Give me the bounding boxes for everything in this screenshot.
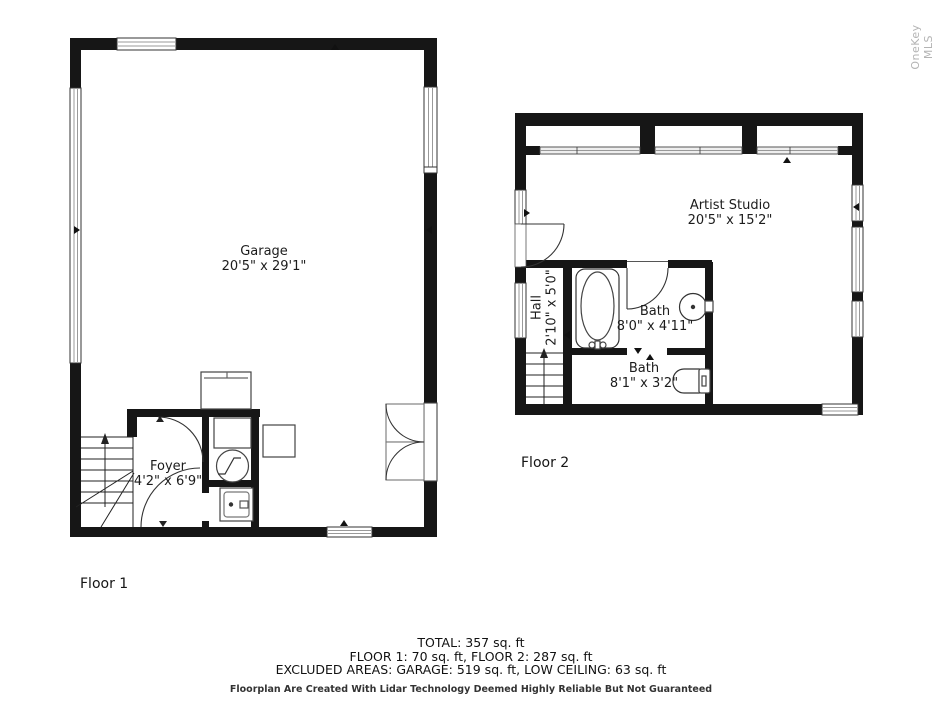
floorplan-page: Garage 20'5" x 29'1" Foyer 4'2" x 6'9" A… bbox=[0, 0, 942, 724]
room-dims: 8'0" x 4'11" bbox=[585, 320, 725, 335]
floorplan-drawing bbox=[0, 0, 942, 724]
summary-floors: FLOOR 1: 70 sq. ft, FLOOR 2: 287 sq. ft bbox=[0, 650, 942, 664]
summary-excluded: EXCLUDED AREAS: GARAGE: 519 sq. ft, LOW … bbox=[0, 663, 942, 677]
bath2-label: Bath 8'1" x 3'2" bbox=[574, 362, 714, 391]
washer-icon bbox=[220, 488, 253, 521]
room-name: Hall bbox=[531, 260, 546, 356]
utility-box-icon bbox=[214, 418, 251, 448]
room-dims: 8'1" x 3'2" bbox=[574, 377, 714, 392]
stairs-floor2-icon bbox=[526, 348, 563, 404]
room-name: Bath bbox=[585, 305, 725, 320]
room-dims: 2'10" x 5'0" bbox=[545, 260, 560, 356]
artist-studio-label: Artist Studio 20'5" x 15'2" bbox=[655, 199, 805, 228]
room-name: Bath bbox=[574, 362, 714, 377]
floor1-label: Floor 1 bbox=[80, 576, 128, 592]
room-dims: 20'5" x 29'1" bbox=[194, 260, 334, 275]
bath-door-icon bbox=[627, 260, 668, 309]
appliance-icon bbox=[201, 372, 251, 409]
floor2-label: Floor 2 bbox=[521, 455, 569, 471]
floor2-dormer-windows bbox=[540, 147, 838, 154]
room-name: Foyer bbox=[98, 460, 238, 475]
garage-box-icon bbox=[263, 425, 295, 457]
summary-disclaimer: Floorplan Are Created With Lidar Technol… bbox=[0, 684, 942, 695]
room-dims: 4'2" x 6'9" bbox=[98, 475, 238, 490]
foyer-label: Foyer 4'2" x 6'9" bbox=[98, 460, 238, 489]
summary-total: TOTAL: 357 sq. ft bbox=[0, 636, 942, 650]
french-door-icon bbox=[386, 403, 437, 481]
bath1-label: Bath 8'0" x 4'11" bbox=[585, 305, 725, 334]
floor1-fixtures bbox=[201, 372, 295, 521]
onekey-mls-watermark: OneKey MLS bbox=[909, 11, 935, 83]
hall-label: Hall 2'10" x 5'0" bbox=[531, 260, 560, 356]
area-summary: TOTAL: 357 sq. ft FLOOR 1: 70 sq. ft, FL… bbox=[0, 636, 942, 695]
room-dims: 20'5" x 15'2" bbox=[655, 214, 805, 229]
garage-label: Garage 20'5" x 29'1" bbox=[194, 245, 334, 274]
room-name: Garage bbox=[194, 245, 334, 260]
room-name: Artist Studio bbox=[655, 199, 805, 214]
